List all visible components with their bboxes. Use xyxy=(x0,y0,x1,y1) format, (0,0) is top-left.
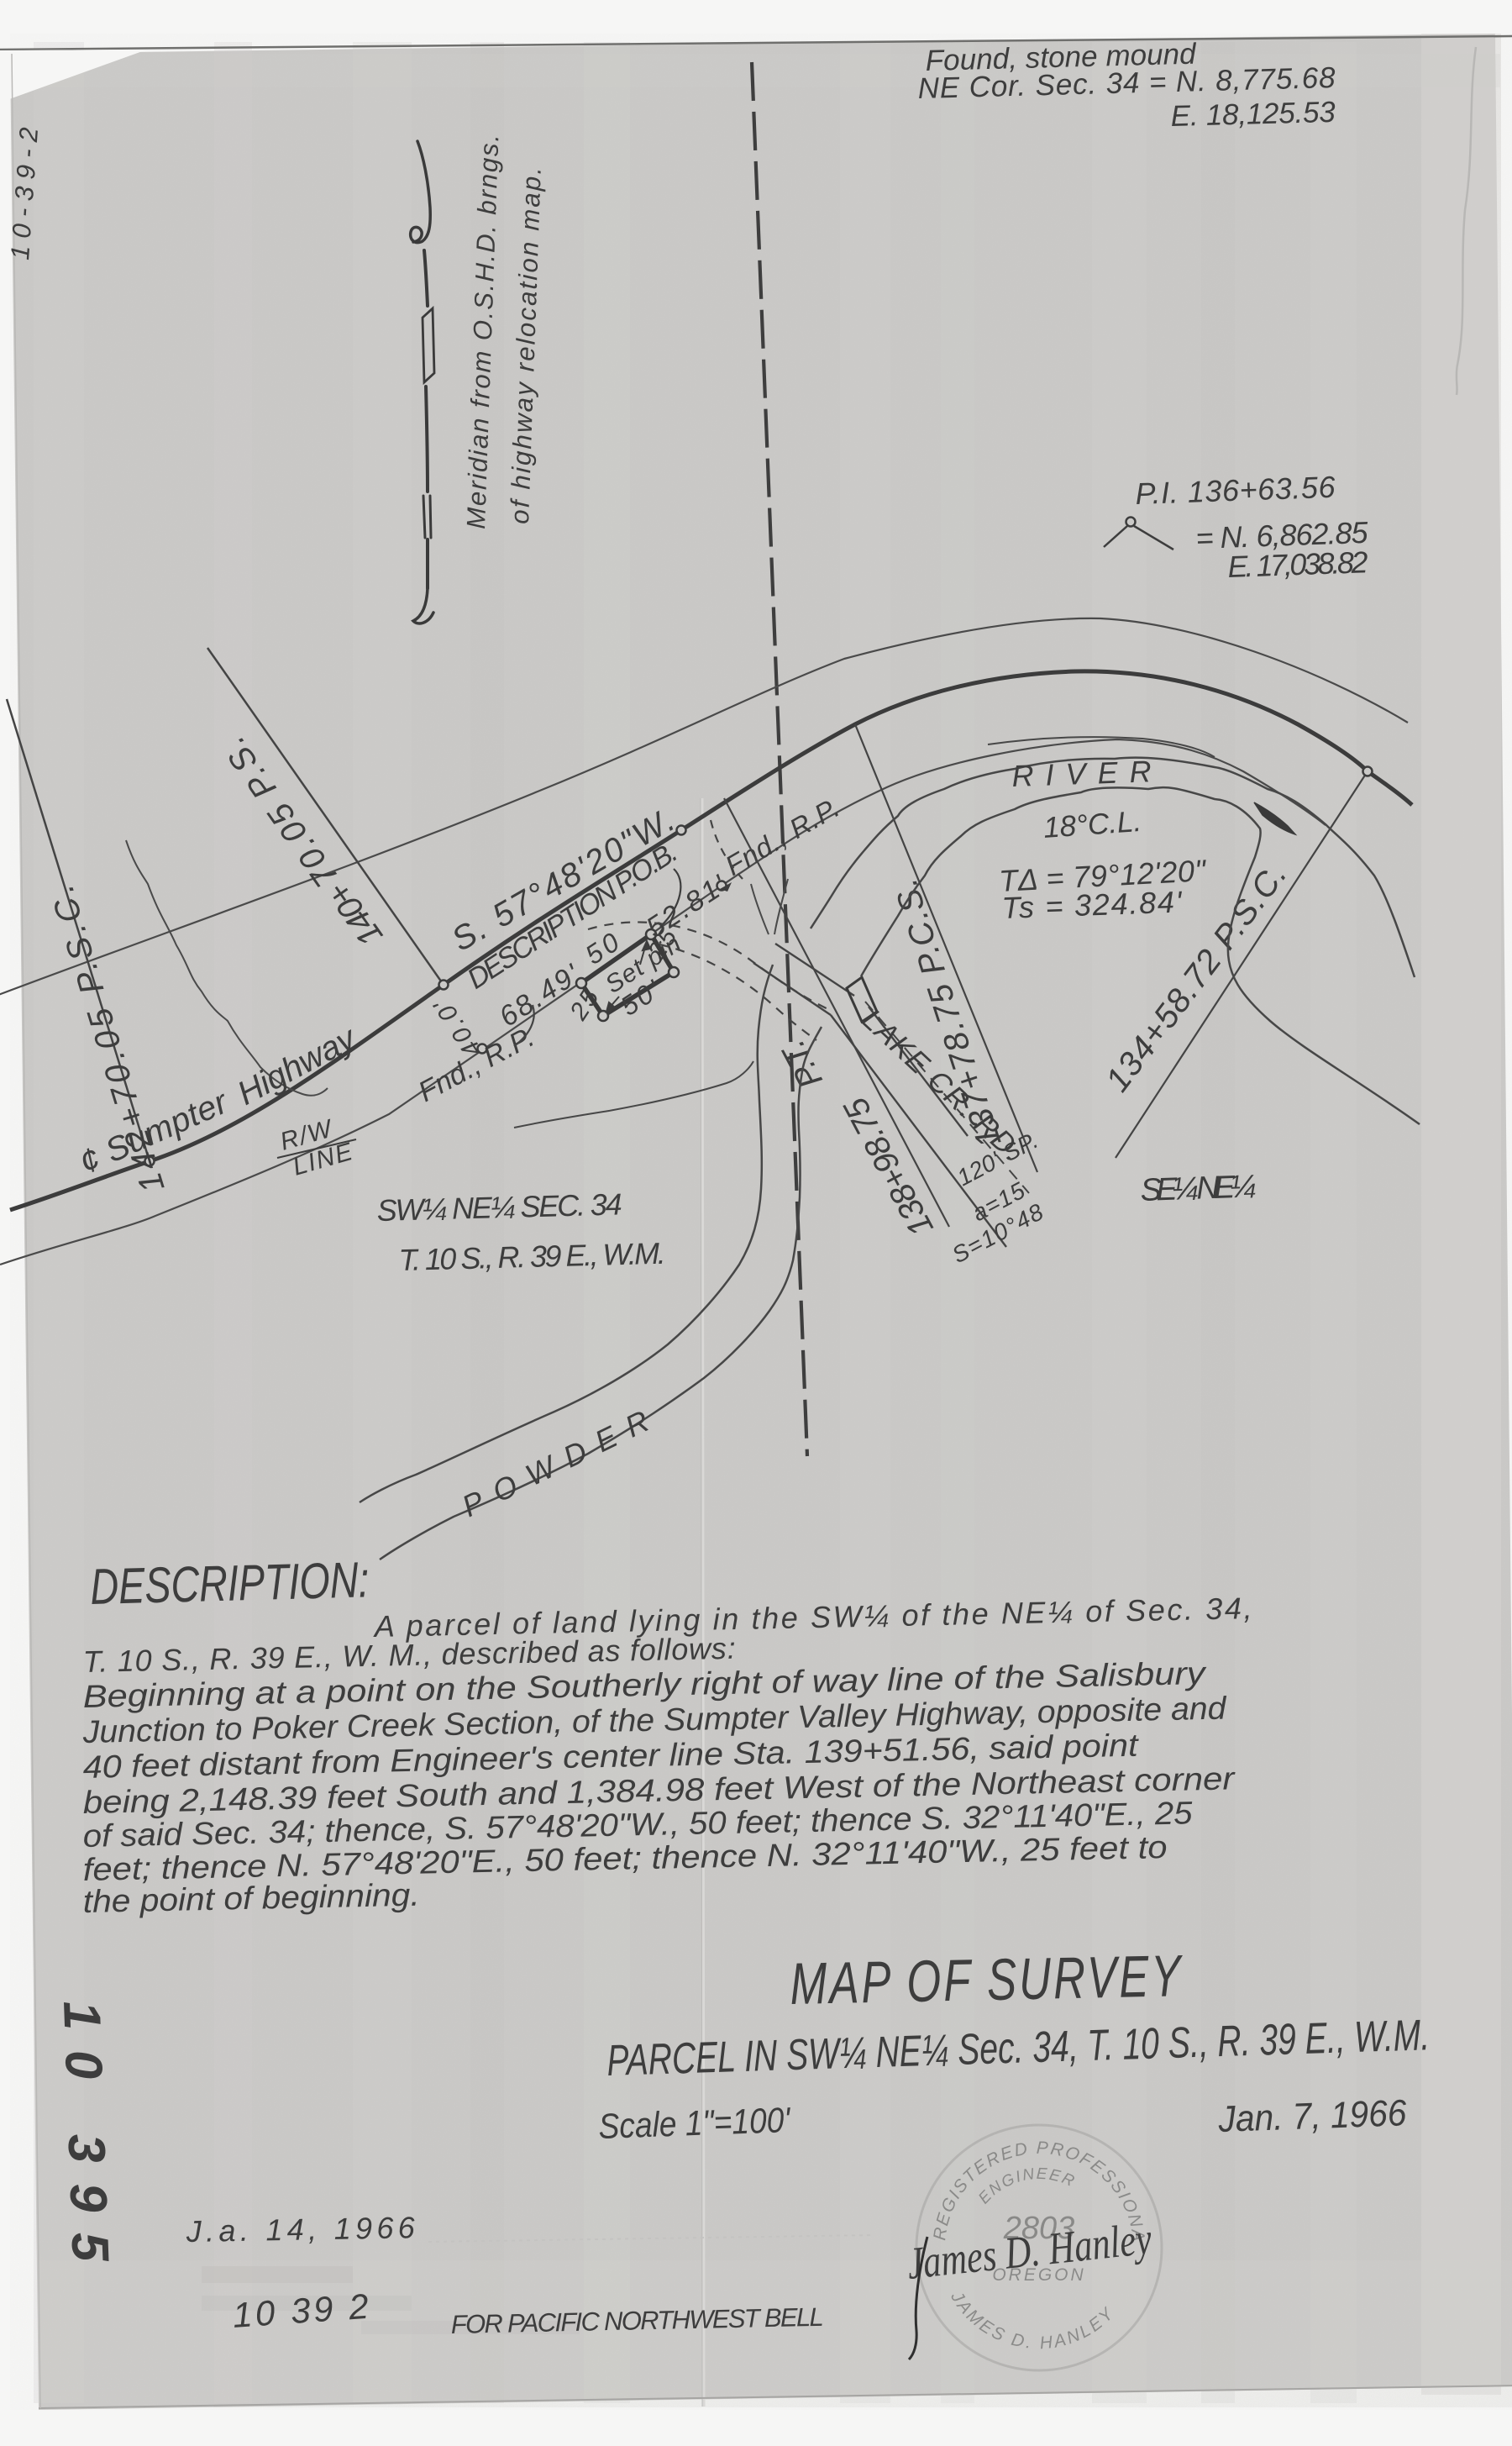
svg-text:E. 18,125.53: E. 18,125.53 xyxy=(1170,96,1336,133)
svg-text:the point of beginning.: the point of beginning. xyxy=(82,1878,420,1920)
svg-text:SW¼ NE¼ SEC. 34: SW¼ NE¼ SEC. 34 xyxy=(376,1186,622,1228)
svg-text:E. 17,038.82: E. 17,038.82 xyxy=(1227,544,1368,584)
svg-text:SE¼ NE¼: SE¼ NE¼ xyxy=(1140,1169,1257,1208)
svg-text:18°C.L.: 18°C.L. xyxy=(1042,805,1145,844)
svg-text:RIVER: RIVER xyxy=(1011,754,1163,793)
svg-text:MAP OF SURVEY: MAP OF SURVEY xyxy=(790,1943,1184,2017)
svg-text:P.I. 136+63.56: P.I. 136+63.56 xyxy=(1135,470,1336,511)
svg-text:Jan. 7, 1966: Jan. 7, 1966 xyxy=(1217,2092,1408,2140)
svg-text:DESCRIPTION:: DESCRIPTION: xyxy=(90,1551,370,1615)
svg-text:Scale 1"=100': Scale 1"=100' xyxy=(598,2100,792,2146)
svg-text:J.a. 14, 1966: J.a. 14, 1966 xyxy=(185,2210,416,2249)
svg-text:T. 10 S., R. 39 E., W.M.: T. 10 S., R. 39 E., W.M. xyxy=(398,1236,666,1277)
